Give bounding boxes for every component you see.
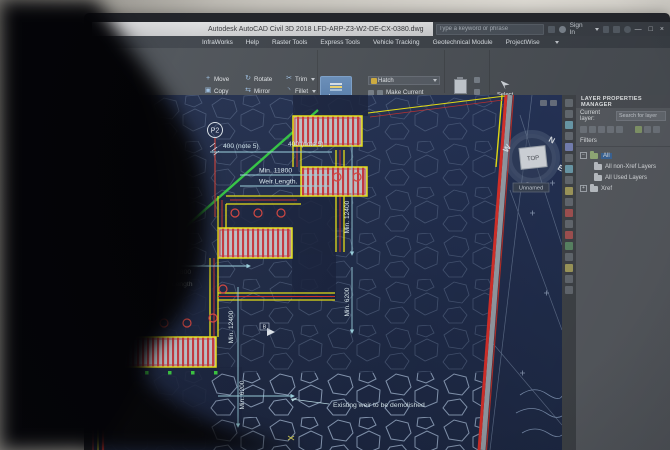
tree-item-non-xref[interactable]: All non-Xref Layers	[578, 161, 668, 172]
view-name-label: Unnamed	[519, 186, 543, 192]
weir-length-mid: Weir Length	[156, 281, 193, 288]
tab-infraworks[interactable]: InfraWorks	[202, 39, 233, 46]
close-button[interactable]: ×	[660, 26, 664, 33]
tab-projectwise[interactable]: ProjectWise	[506, 39, 540, 46]
maximize-button[interactable]: □	[649, 26, 653, 33]
min-11800-top: Min. 11800	[259, 168, 292, 175]
layer-select-dropdown[interactable]: Hatch	[368, 76, 440, 85]
mirror-button[interactable]: ⇆ Mirror	[244, 87, 270, 95]
tree-item-all[interactable]: − All	[578, 150, 668, 161]
new-group-filter-icon[interactable]	[589, 126, 596, 133]
lpm-toolbar	[576, 124, 670, 135]
toolbar-icon[interactable]	[565, 154, 573, 162]
layer-states-icon[interactable]	[598, 126, 605, 133]
docked-toolbar	[562, 95, 576, 450]
folder-icon	[594, 175, 602, 181]
copy-clip-button[interactable]	[474, 77, 481, 83]
viewcube-top-face[interactable]: TOP	[527, 155, 540, 162]
help-search-input[interactable]	[436, 24, 544, 35]
toolbar-icon[interactable]	[565, 121, 573, 129]
section-marker-label: B	[263, 325, 267, 331]
note-400-c: 400 (note 5)	[122, 256, 158, 263]
trim-label: Trim	[295, 76, 307, 83]
tree-item-used-label: All Used Layers	[605, 175, 647, 181]
fillet-label: Fillet	[295, 88, 308, 95]
toolbar-icon[interactable]	[565, 286, 573, 294]
delete-layer-icon[interactable]	[616, 126, 623, 133]
toolbar-icon[interactable]	[565, 99, 573, 107]
note-400-b: 400 (note 5)	[288, 141, 324, 148]
set-current-icon[interactable]	[635, 126, 642, 133]
folder-icon	[594, 164, 602, 170]
tree-item-all-label: All	[601, 153, 612, 159]
layer-dropdown-icon	[433, 79, 437, 82]
lpm-title: LAYER PROPERTIES MANAGER	[576, 95, 670, 108]
layers-icon	[330, 83, 342, 92]
tab-vehicle-tracking[interactable]: Vehicle Tracking	[373, 39, 420, 46]
rotate-icon: ↻	[244, 75, 252, 83]
dim-min-12400-left: Min. 12400	[228, 310, 235, 343]
toolbar-icon[interactable]	[565, 165, 573, 173]
dim-min-6200-left: Min. 6200	[239, 380, 246, 409]
toolbar-icon[interactable]	[565, 176, 573, 184]
layer-properties-manager: LAYER PROPERTIES MANAGER Current layer: …	[576, 95, 670, 450]
expand-icon[interactable]: +	[580, 185, 587, 192]
weir-length-top: Weir Length.	[259, 179, 298, 186]
note-400-a: 400 (note 5)	[223, 143, 259, 150]
folder-icon	[590, 153, 598, 159]
current-layer-name: Hatch	[378, 78, 394, 84]
new-layer-icon[interactable]	[607, 126, 614, 133]
copy-button[interactable]: ▣ Copy	[204, 87, 228, 95]
tab-express-tools[interactable]: Express Tools	[320, 39, 360, 46]
mirror-label: Mirror	[254, 88, 270, 95]
panel-divider	[317, 50, 318, 93]
fillet-button[interactable]: ◝ Fillet	[285, 87, 316, 95]
user-avatar-icon	[559, 26, 566, 33]
filters-label: Filters	[576, 135, 670, 147]
settings-icon[interactable]	[653, 126, 660, 133]
layer-search-input[interactable]	[616, 111, 666, 121]
tree-item-used[interactable]: All Used Layers	[578, 172, 668, 183]
tree-item-non-xref-label: All non-Xref Layers	[605, 164, 656, 170]
move-icon: +	[204, 75, 212, 83]
dim-min-12400-right: Min. 12400	[344, 200, 351, 233]
search-icon[interactable]	[548, 26, 555, 33]
toolbar-icon[interactable]	[565, 264, 573, 272]
cursor-icon	[501, 81, 510, 90]
demolition-note-text: Existing weir to be demolished	[333, 402, 425, 409]
toolbar-icon[interactable]	[565, 242, 573, 250]
toolbar-icon[interactable]	[565, 110, 573, 118]
hatched-bar-3	[218, 228, 292, 258]
drawing-canvas[interactable]: P2 400 (note 5) 400 (note 5) Min. 11800 …	[92, 95, 562, 450]
copy-clip-icon	[474, 77, 480, 83]
trim-button[interactable]: ✂ Trim	[285, 75, 315, 83]
dim-min-6200-right: Min. 6200	[344, 287, 351, 316]
chevron-down-icon[interactable]	[595, 28, 599, 31]
title-bar-right: Sign In — □ ×	[433, 22, 670, 36]
title-bar: Autodesk AutoCAD Civil 3D 2018 LFD-ARP-Z…	[92, 22, 433, 36]
folder-icon	[590, 186, 598, 192]
layer-filter-tree: − All All non-Xref Layers All Used Layer…	[576, 147, 670, 197]
move-button[interactable]: + Move	[204, 75, 229, 83]
rock-band-bottom	[210, 373, 482, 450]
share-icon[interactable]	[603, 26, 610, 33]
tab-overflow-icon[interactable]	[555, 41, 559, 44]
panel-divider	[489, 50, 490, 93]
current-layer-label: Current layer:	[580, 110, 613, 122]
tab-help[interactable]: Help	[246, 39, 259, 46]
autocad-window: Autodesk AutoCAD Civil 3D 2018 LFD-ARP-Z…	[92, 22, 670, 450]
move-label: Move	[214, 76, 229, 83]
toolbar-icon[interactable]	[565, 198, 573, 206]
toolbar-icon[interactable]	[565, 209, 573, 217]
tree-item-xref[interactable]: + Xref	[578, 183, 668, 194]
copy-label: Copy	[214, 88, 228, 95]
ribbon-tab-bar: InfraWorks Help Raster Tools Express Too…	[92, 36, 670, 48]
toolbar-icon[interactable]	[565, 231, 573, 239]
layer-status-icon	[371, 78, 377, 84]
toolbar-icon[interactable]	[565, 275, 573, 283]
cloud-icon[interactable]	[613, 26, 620, 33]
panel-divider	[444, 50, 445, 93]
mirror-icon: ⇆	[244, 87, 252, 95]
trim-flyout-icon[interactable]	[311, 78, 315, 81]
tab-raster-tools[interactable]: Raster Tools	[272, 39, 307, 46]
paste-icon	[454, 79, 467, 94]
toolbar-icon[interactable]	[565, 143, 573, 151]
hatched-bar-4	[110, 337, 216, 367]
ribbon: + Move ↻ Rotate ✂ Trim ▣ Copy ⇆ Mirror ◝…	[92, 48, 670, 95]
new-property-filter-icon[interactable]	[580, 126, 587, 133]
toolbar-icon[interactable]	[565, 187, 573, 195]
minimize-button[interactable]: —	[635, 26, 642, 33]
window-controls: — □ ×	[635, 26, 670, 33]
window-title: Autodesk AutoCAD Civil 3D 2018 LFD-ARP-Z…	[92, 26, 424, 33]
copy-icon: ▣	[204, 87, 212, 95]
fillet-flyout-icon[interactable]	[312, 90, 316, 93]
rotate-label: Rotate	[254, 76, 272, 83]
collapse-icon[interactable]: −	[580, 152, 587, 159]
fillet-icon: ◝	[285, 87, 293, 95]
toolbar-icon[interactable]	[565, 220, 573, 228]
toolbar-icon[interactable]	[565, 132, 573, 140]
toolbar-icon[interactable]	[565, 253, 573, 261]
sign-in-button[interactable]: Sign In	[570, 22, 589, 36]
rotate-button[interactable]: ↻ Rotate	[244, 75, 272, 83]
trim-icon: ✂	[285, 75, 293, 83]
tree-item-xref-label: Xref	[601, 186, 612, 192]
refresh-icon[interactable]	[644, 126, 651, 133]
help-icon[interactable]	[624, 26, 631, 33]
p2-label: P2	[211, 128, 220, 135]
min-11800-mid: Min. 11800	[158, 269, 191, 276]
tab-geotechnical-module[interactable]: Geotechnical Module	[433, 39, 493, 46]
